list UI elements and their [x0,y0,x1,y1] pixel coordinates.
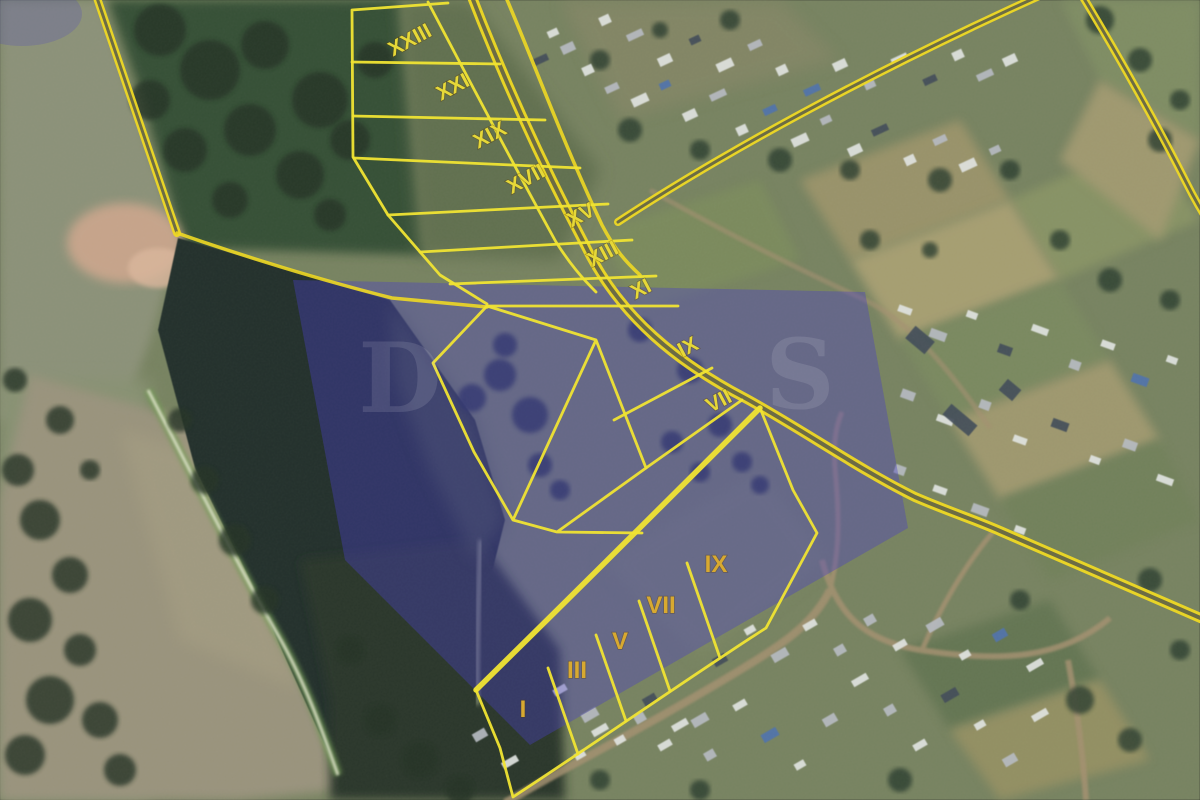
satellite-map: XXIIIXXIXIXXVIIXVXIIIXIIXVIIIXVIIVIIII D… [0,0,1200,800]
parcel-label-III: III [567,657,587,684]
parcel-label-IX: IX [705,551,728,578]
parcel-label-I: I [520,696,527,723]
watermark-letter: S [765,318,834,431]
map-viewport: XXIIIXXIXIXXVIIXVXIIIXIIXVIIIXVIIVIIII D… [0,0,1200,800]
parcel-label-V: V [612,628,628,655]
parcel-label-VII: VII [646,592,675,619]
watermark-letter: D [358,322,441,435]
